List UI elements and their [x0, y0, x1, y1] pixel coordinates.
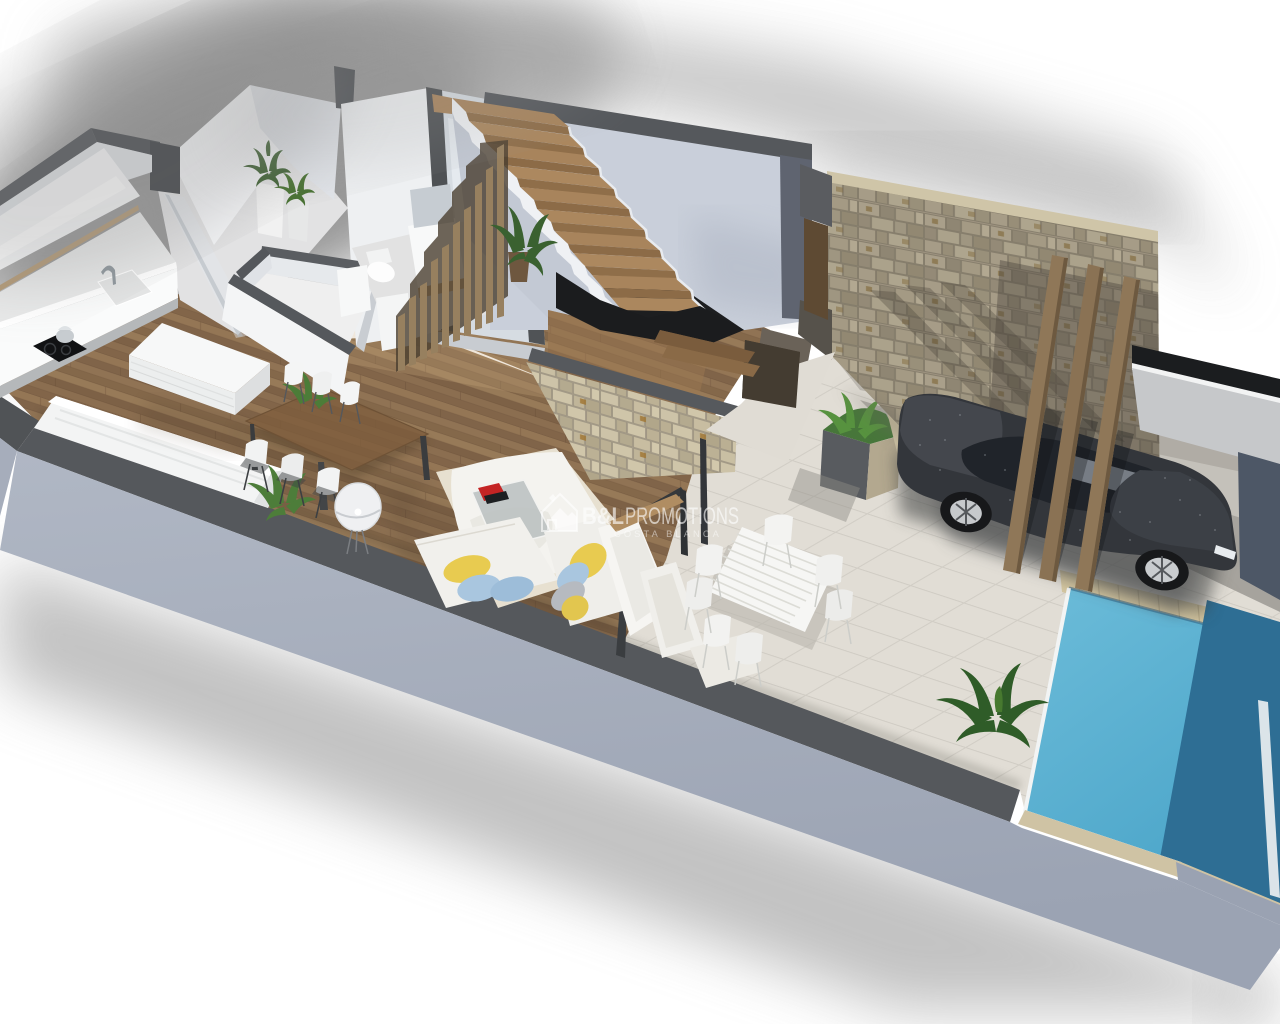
svg-text:PROMOTIONS: PROMOTIONS	[625, 503, 739, 530]
svg-text:COSTA BLANCA: COSTA BLANCA	[614, 529, 722, 539]
svg-text:B&L: B&L	[582, 503, 624, 530]
